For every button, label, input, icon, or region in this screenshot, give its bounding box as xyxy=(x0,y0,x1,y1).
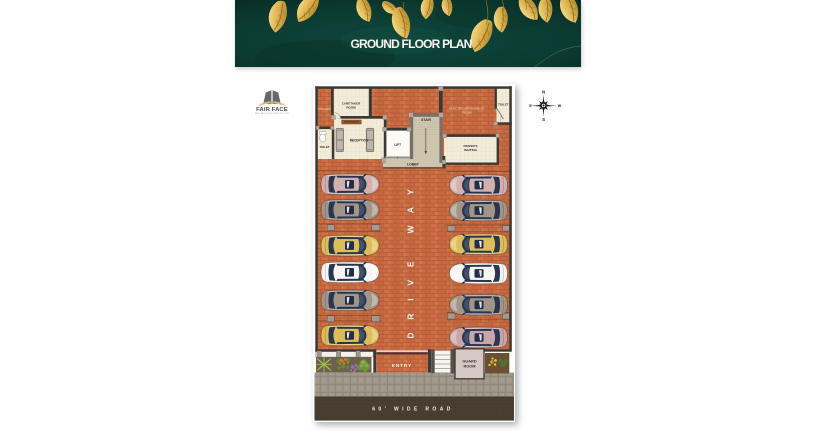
svg-text:STAIR: STAIR xyxy=(421,118,431,122)
svg-text:E: E xyxy=(529,104,532,108)
svg-text:ROOM: ROOM xyxy=(463,364,475,369)
svg-text:ENTRY: ENTRY xyxy=(392,363,412,368)
svg-text:ROOM: ROOM xyxy=(346,106,356,110)
svg-text:ROOM: ROOM xyxy=(462,111,472,115)
svg-text:S: S xyxy=(542,117,545,122)
svg-text:LIFT: LIFT xyxy=(394,143,401,147)
svg-text:GROUND FLOOR PLAN: GROUND FLOOR PLAN xyxy=(350,37,471,51)
svg-text:KITCHEN: KITCHEN xyxy=(318,107,331,111)
svg-text:RECEPTION: RECEPTION xyxy=(350,139,369,143)
svg-text:N: N xyxy=(542,90,545,95)
svg-text:W: W xyxy=(558,104,562,108)
svg-text:DRIVE WAY: DRIVE WAY xyxy=(406,177,416,339)
svg-text:TOILET: TOILET xyxy=(319,145,329,149)
svg-text:TOILET: TOILET xyxy=(498,103,508,107)
svg-text:60' WIDE ROAD: 60' WIDE ROAD xyxy=(372,407,454,413)
svg-text:LOBBY: LOBBY xyxy=(407,163,420,167)
svg-text:WAITING: WAITING xyxy=(464,148,477,152)
svg-text:FAIR FACE BUILDERS PVT LTD: FAIR FACE BUILDERS PVT LTD xyxy=(255,112,290,115)
